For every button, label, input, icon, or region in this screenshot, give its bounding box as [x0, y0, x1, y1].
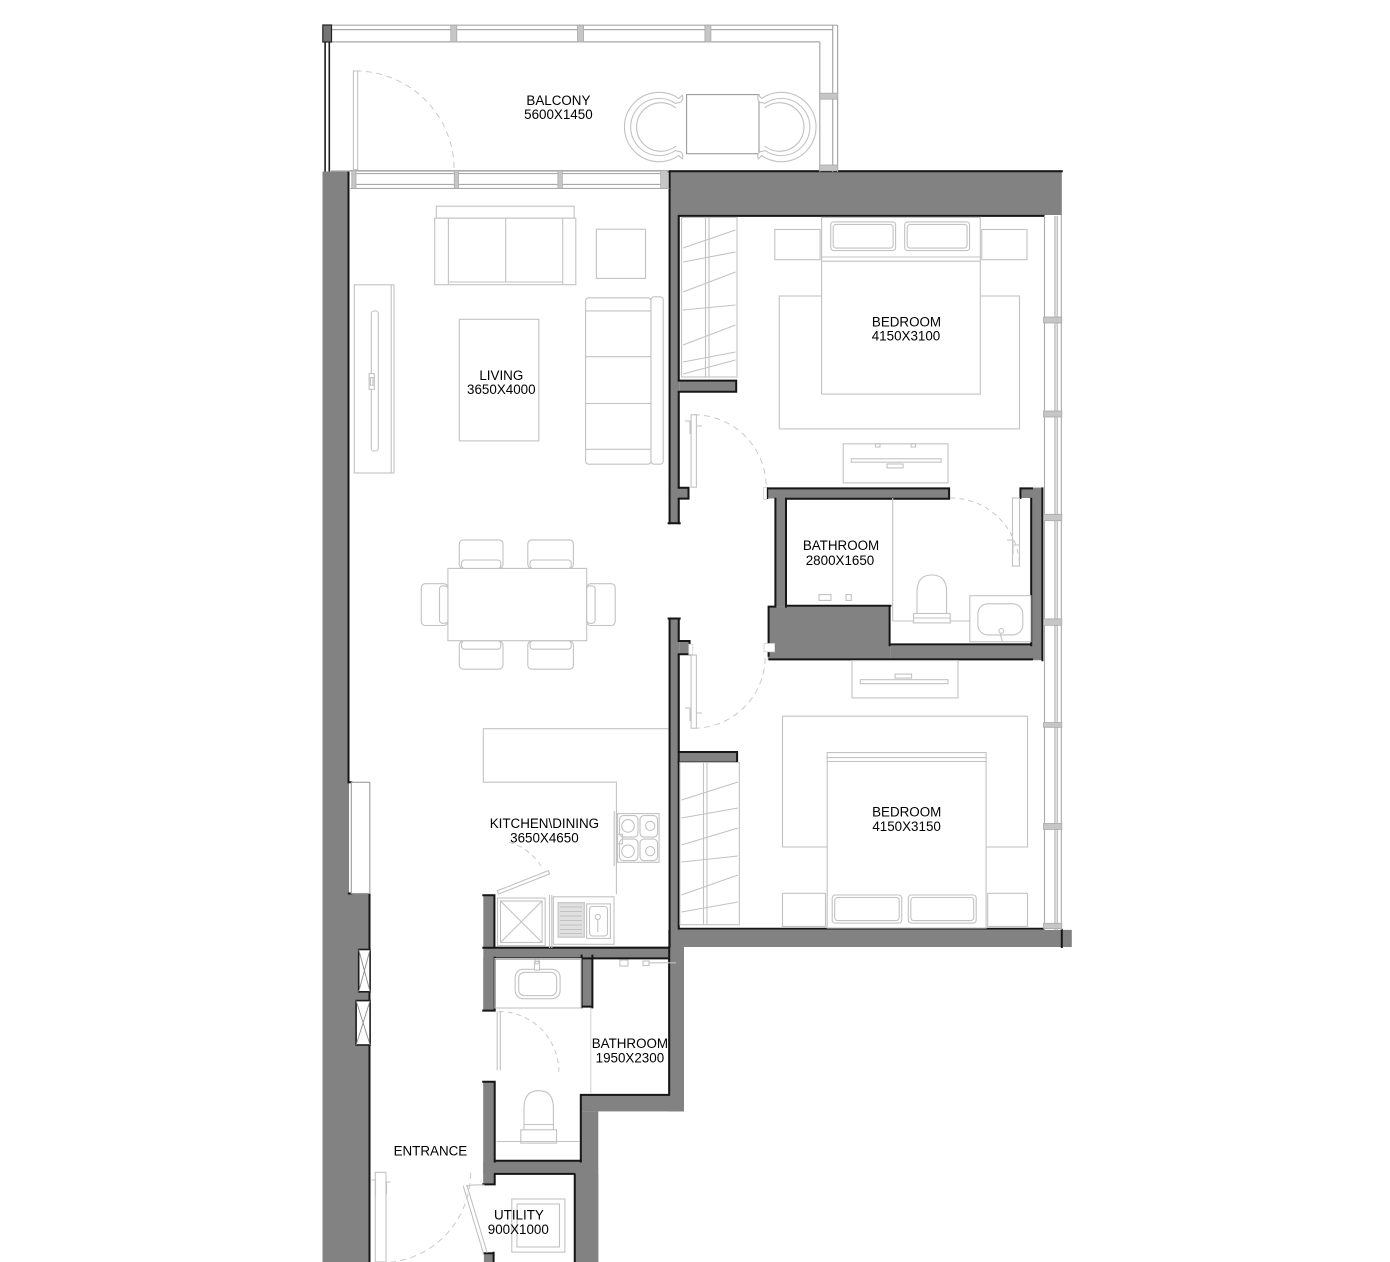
- svg-text:2800X1650: 2800X1650: [806, 553, 875, 568]
- svg-text:4150X3150: 4150X3150: [872, 819, 941, 834]
- svg-text:BEDROOM: BEDROOM: [872, 805, 941, 820]
- svg-text:5600X1450: 5600X1450: [524, 107, 593, 122]
- svg-text:BATHROOM: BATHROOM: [803, 538, 879, 553]
- svg-text:ENTRANCE: ENTRANCE: [394, 1143, 468, 1158]
- svg-text:BEDROOM: BEDROOM: [872, 314, 941, 329]
- svg-text:4150X3100: 4150X3100: [872, 328, 941, 343]
- svg-text:900X1000: 900X1000: [488, 1222, 549, 1237]
- svg-text:BALCONY: BALCONY: [526, 93, 590, 108]
- svg-text:KITCHEN\DINING: KITCHEN\DINING: [490, 816, 599, 831]
- svg-text:UTILITY: UTILITY: [494, 1208, 544, 1223]
- svg-text:3650X4000: 3650X4000: [467, 382, 536, 397]
- svg-text:BATHROOM: BATHROOM: [592, 1036, 668, 1051]
- svg-text:3650X4650: 3650X4650: [510, 830, 579, 845]
- svg-text:1950X2300: 1950X2300: [596, 1050, 665, 1065]
- svg-text:LIVING: LIVING: [479, 368, 523, 383]
